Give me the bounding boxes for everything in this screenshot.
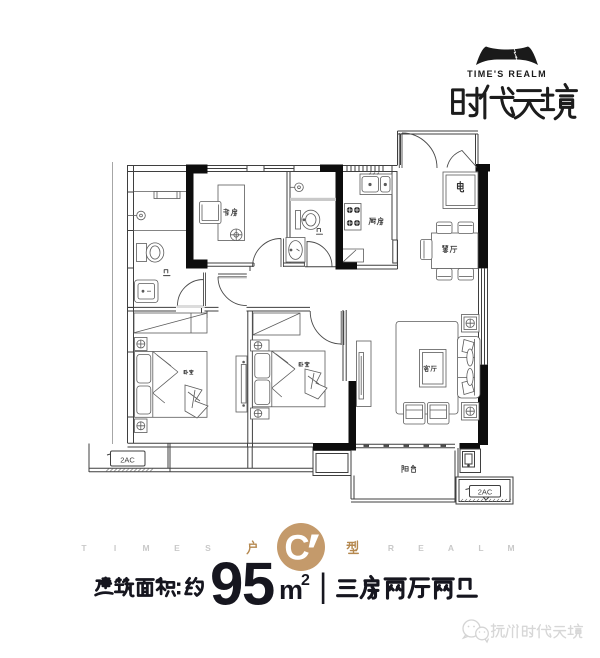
svg-text:95: 95: [210, 551, 274, 618]
svg-text:C: C: [284, 529, 309, 568]
svg-text:A: A: [448, 543, 454, 553]
svg-text:2AC: 2AC: [120, 456, 135, 465]
svg-text:T: T: [81, 543, 87, 553]
svg-text:E: E: [174, 543, 180, 553]
svg-text:I: I: [114, 543, 116, 553]
svg-text:m: m: [279, 575, 303, 605]
svg-text:2: 2: [301, 572, 310, 589]
svg-text:M: M: [142, 543, 149, 553]
svg-text:R: R: [388, 543, 394, 553]
svg-text:2AC: 2AC: [478, 488, 493, 497]
svg-text:TIME'S REALM: TIME'S REALM: [467, 69, 547, 79]
svg-text:M: M: [507, 543, 514, 553]
svg-text:L: L: [478, 543, 483, 553]
svg-text:E: E: [418, 543, 424, 553]
